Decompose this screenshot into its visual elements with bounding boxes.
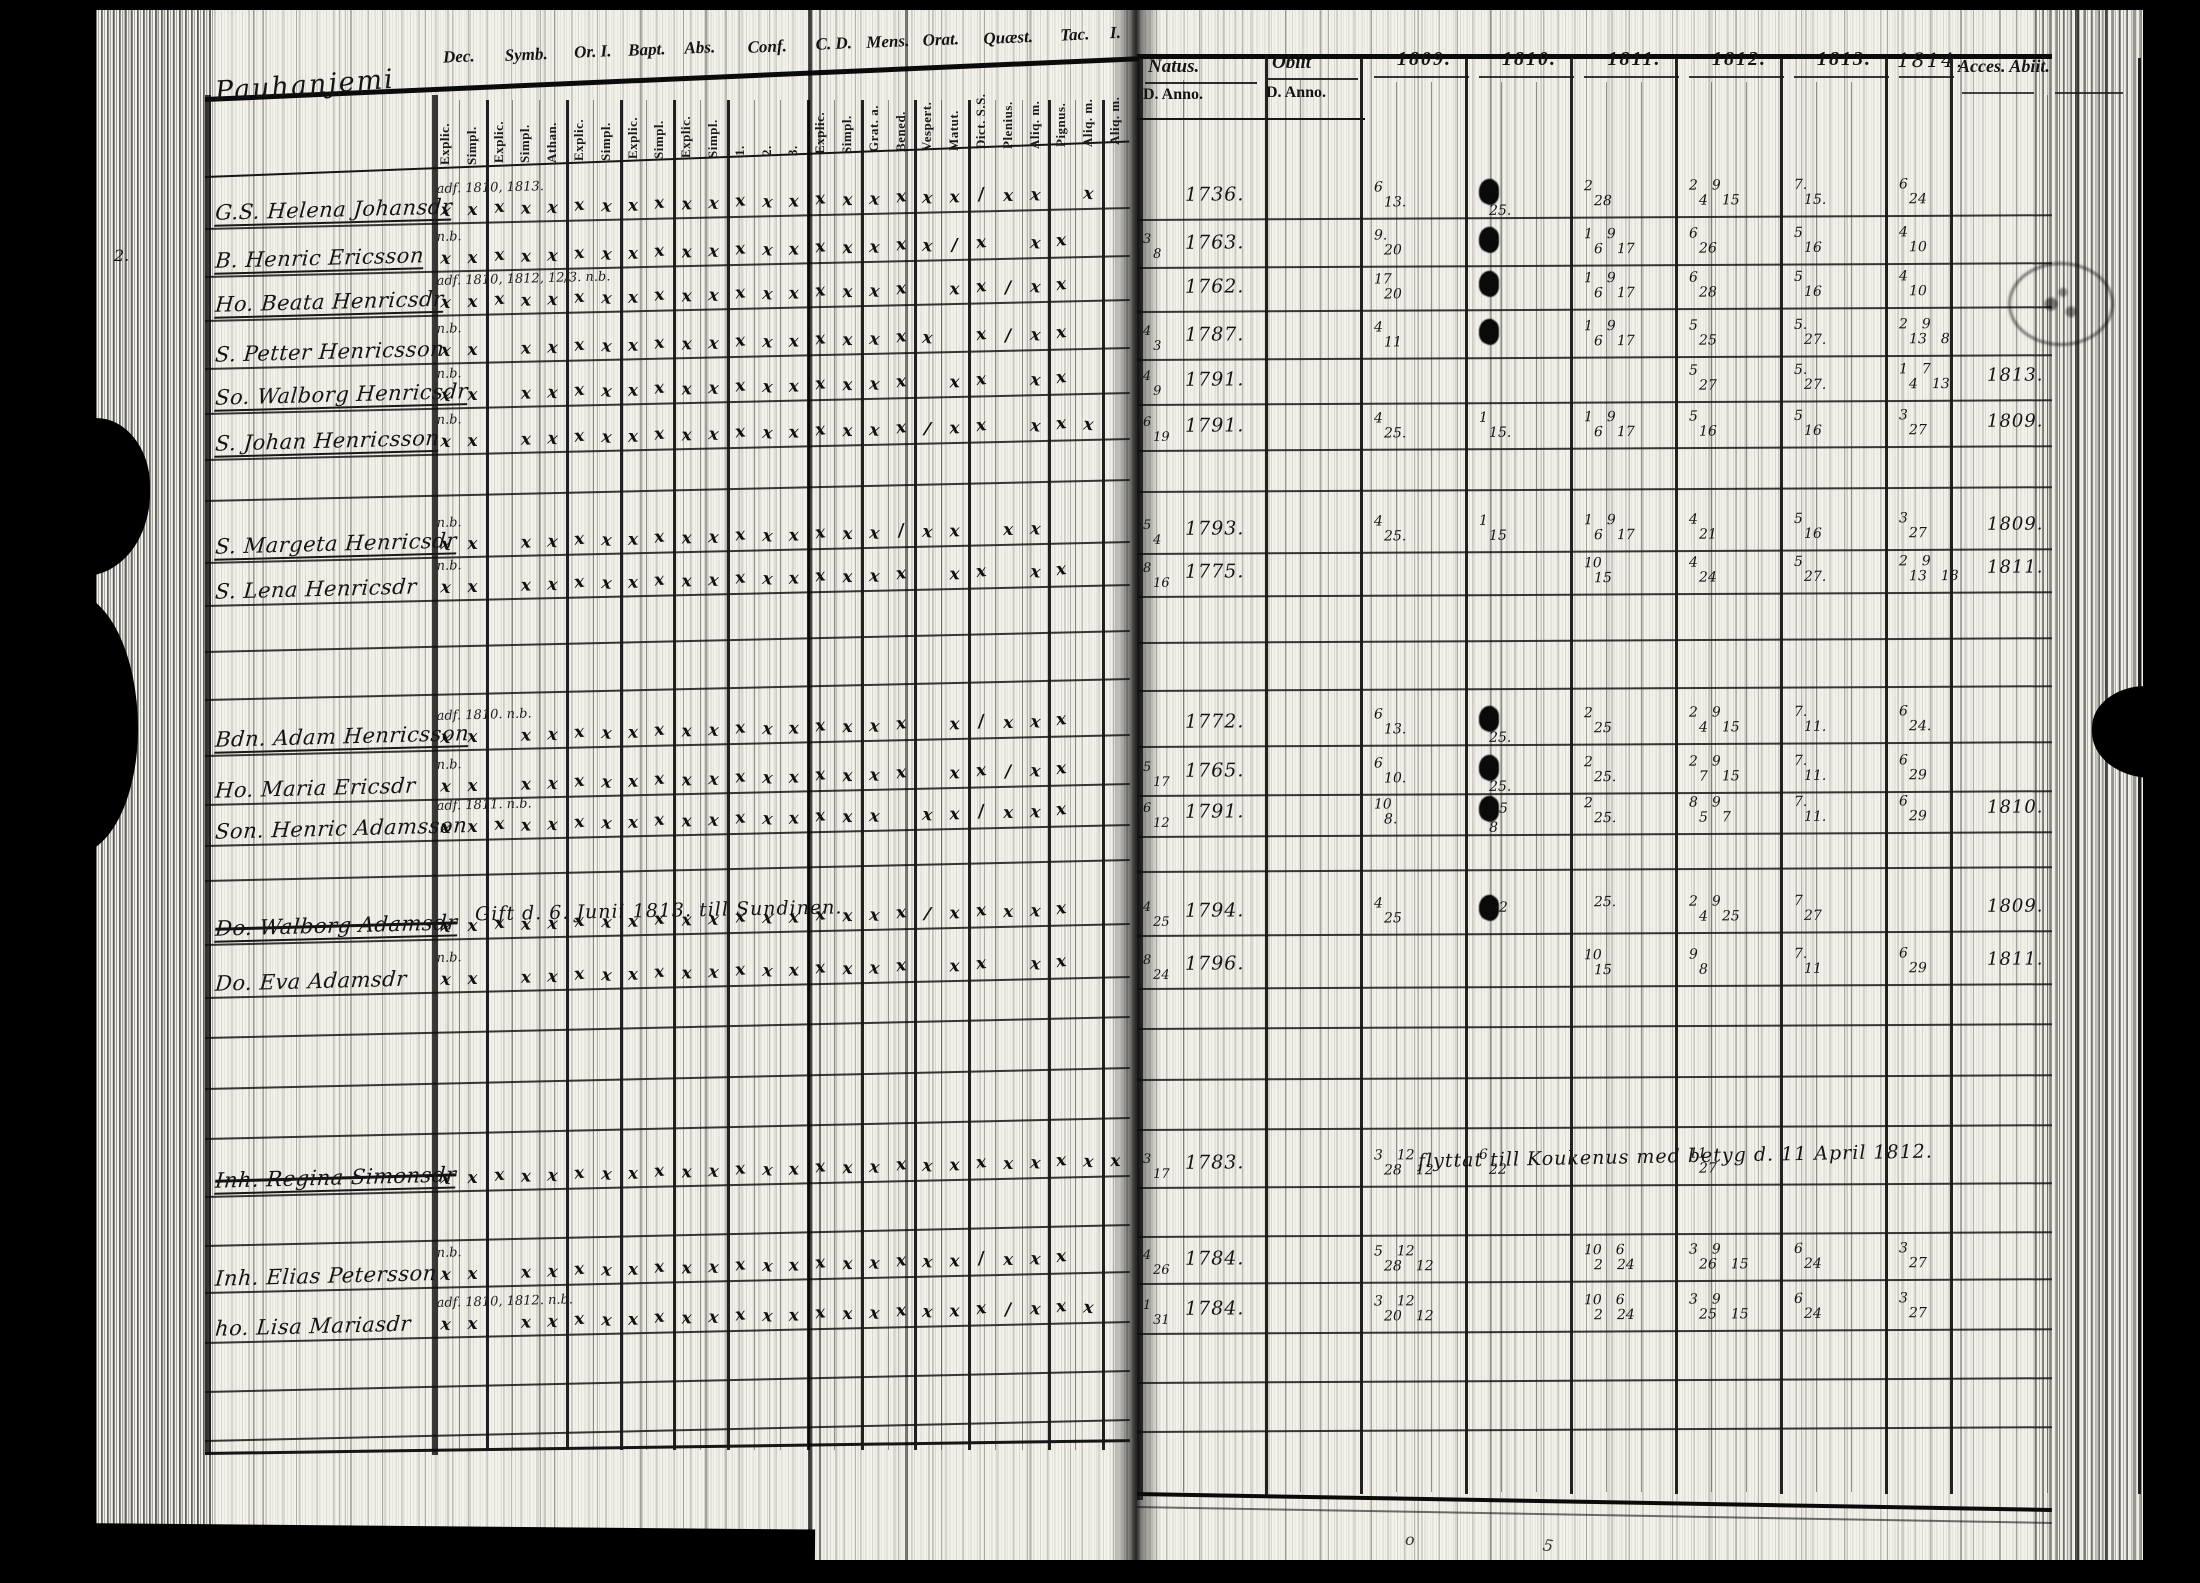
date-figures: 26 — [1143, 1263, 1170, 1278]
date-figures: 17 — [1374, 272, 1402, 287]
mark-x: x — [1047, 1149, 1076, 1172]
attendance-note: adf. 1810, 1812. n.b. — [436, 1292, 573, 1311]
mark-empty — [484, 573, 513, 596]
mark-x: x — [673, 1162, 700, 1183]
year-header: 1814. — [1897, 48, 1962, 72]
mark-x: x — [1047, 229, 1076, 252]
date-figures: 6 — [1374, 707, 1406, 722]
communion-dates-1811: 1015 — [1584, 948, 1612, 978]
abiit-year: 1809. — [1987, 413, 2044, 428]
person-name: G.S. Helena Johansdr — [214, 194, 453, 226]
column-sub-label: Aliq. m. — [1080, 55, 1096, 147]
mark-x: x — [806, 564, 835, 587]
year-grid-row: 8241796.1015987.116291811. — [1137, 939, 2147, 991]
date-figures: 5 — [1794, 226, 1822, 241]
communion-dates-1813: 516 — [1794, 512, 1822, 542]
person-name: Do. Eva Adamsdr — [214, 967, 407, 996]
date-figures: 5 — [1689, 409, 1717, 424]
mark-x: x — [806, 235, 835, 258]
mark-x: x — [860, 328, 889, 350]
year-header: 1811. — [1582, 48, 1687, 71]
natus-day: 824 — [1143, 953, 1170, 983]
date-figures: 27 — [1794, 909, 1822, 924]
natus-year: 1783. — [1185, 1155, 1244, 1170]
mark-x: x — [699, 284, 728, 306]
mark-x: x — [512, 338, 539, 359]
date-figures: 5 — [1794, 512, 1822, 527]
date-figures: 11. — [1794, 720, 1826, 735]
communion-dates-1814: 410 — [1899, 269, 1927, 299]
year-header: 1813. — [1792, 48, 1897, 71]
date-figures: 3 — [1143, 1152, 1170, 1167]
mark-x: x — [673, 1258, 700, 1279]
mark-x: x — [673, 1308, 700, 1329]
natus-day: 517 — [1143, 760, 1170, 790]
mark-x: x — [699, 569, 728, 591]
communion-dates-1814: 327 — [1899, 1291, 1927, 1321]
film-notch-right — [2092, 686, 2200, 778]
date-figures: 8 — [1689, 963, 1708, 978]
mark-x: x — [673, 194, 700, 215]
date-figures: 24. — [1899, 719, 1931, 734]
date-figures: 8 — [1143, 953, 1170, 968]
date-figures: 27 — [1689, 378, 1717, 393]
mark-x: x — [941, 418, 968, 439]
mark-x: x — [484, 813, 513, 836]
mark-x: x — [645, 1159, 674, 1182]
mark-x: x — [673, 721, 700, 742]
communion-dates-1812: 626 — [1689, 226, 1717, 256]
date-figures: 25. — [1479, 731, 1511, 746]
date-figures: 27 — [1899, 526, 1927, 541]
communion-dates-1814: 1 74 13 — [1899, 362, 1950, 392]
mark-x: x — [673, 286, 700, 307]
mark-x: x — [619, 380, 646, 401]
date-figures: 5. — [1794, 363, 1826, 378]
date-figures: 21 — [1689, 527, 1717, 542]
date-figures: 3 — [1143, 232, 1161, 247]
mark-x: x — [967, 275, 996, 298]
year-underline — [1794, 76, 1889, 78]
mark-x: x — [645, 1305, 674, 1328]
communion-dates-1812: 2 97 15 — [1689, 754, 1740, 784]
mark-x: x — [1047, 321, 1076, 344]
date-figures: 6 17 — [1584, 334, 1635, 349]
mark-x: x — [994, 1250, 1021, 1271]
mark-x: x — [834, 190, 861, 211]
natus-day: 612 — [1143, 801, 1170, 831]
mark-empty — [1102, 323, 1129, 344]
mark-x: x — [1074, 183, 1103, 205]
communion-dates-1811: 1 96 17 — [1584, 513, 1635, 543]
date-figures: 2 24 — [1584, 1308, 1635, 1323]
communion-dates-1809: 425. — [1374, 411, 1406, 441]
communion-dates-1809: 9.20 — [1374, 228, 1402, 258]
mark-x: x — [512, 383, 539, 404]
date-figures: 19 — [1143, 430, 1170, 445]
mark-empty — [1102, 231, 1129, 252]
mark-x: x — [725, 716, 754, 739]
natus-year: 1736. — [1185, 187, 1244, 202]
mark-x: x — [431, 816, 460, 838]
person-name: So. Walborg Henricsdr — [214, 379, 469, 412]
natus-year: 1763. — [1185, 235, 1244, 250]
acces-abiit-header: Acces. Abiit. — [1958, 56, 2138, 77]
mark-empty — [1102, 952, 1129, 973]
communion-dates-1814: 327 — [1899, 408, 1927, 438]
mark-x: x — [619, 287, 646, 308]
communion-dates-1814: 2 913 8 — [1899, 317, 1950, 347]
mark-empty — [994, 371, 1021, 392]
mark-x: x — [753, 718, 782, 740]
mark-x: x — [538, 724, 567, 746]
date-figures: 15 — [1479, 529, 1507, 544]
abiit-year: 1811. — [1987, 559, 2044, 574]
mark-x: x — [699, 961, 728, 983]
mark-x: x — [699, 809, 728, 831]
mark-x: x — [459, 1314, 486, 1335]
column-group-label: I. — [1092, 22, 1140, 44]
mark-x: x — [1021, 561, 1050, 583]
abiit-year: 1810. — [1987, 799, 2044, 814]
obiit-underline — [1268, 78, 1358, 80]
attendance-note: n.b. — [436, 412, 461, 428]
person-name: Inh. Regina Simonsdr — [214, 1162, 457, 1194]
communion-dates-1812: 3 926 15 — [1689, 1242, 1749, 1272]
communion-dates-1812: 421 — [1689, 512, 1717, 542]
mark-x: x — [645, 422, 674, 445]
mark-x: x — [886, 1249, 915, 1272]
date-figures: 24 — [1794, 1307, 1822, 1322]
date-figures: 4 — [1689, 555, 1717, 570]
attendance-note: n.b. — [436, 229, 461, 245]
year-grid-row: 431787.4111 96 175255.27.2 913 8 — [1137, 310, 2147, 362]
mark-x: x — [780, 1305, 807, 1326]
mark-x: x — [1021, 369, 1050, 391]
date-figures: 5 — [1143, 760, 1170, 775]
communion-dates-1811: 1 96 17 — [1584, 227, 1635, 257]
mark-x: x — [699, 719, 728, 741]
communion-dates-1811: 225. — [1584, 755, 1616, 785]
date-figures: 8. — [1374, 812, 1397, 827]
column-sub-label: Plenius. — [1000, 57, 1016, 149]
year-grid-row: 8161775.1015424527.2 913 181811. — [1137, 547, 2147, 599]
date-figures: 4 — [1143, 533, 1161, 548]
date-figures: 16 — [1143, 576, 1170, 591]
date-figures: 2 — [1584, 796, 1616, 811]
mark-x: x — [484, 196, 513, 219]
year-underline — [1479, 76, 1574, 78]
column-sub-label: Vespert. — [919, 59, 935, 151]
date-figures: 10 — [1899, 240, 1927, 255]
natus-day: 426 — [1143, 1248, 1170, 1278]
date-figures: 25. — [1584, 811, 1616, 826]
date-figures: 27 — [1899, 423, 1927, 438]
mark-x: x — [699, 377, 728, 399]
mark-x: x — [431, 199, 460, 221]
date-figures: 3 — [1899, 408, 1927, 423]
mark-x: x — [1047, 950, 1076, 973]
communion-dates-1809: 425 — [1374, 896, 1402, 926]
mark-x: ∕ — [994, 326, 1021, 347]
communion-dates-1813: 624 — [1794, 1242, 1822, 1272]
date-figures: 29 — [1899, 768, 1927, 783]
mark-x: x — [619, 1259, 646, 1280]
mark-x: x — [1021, 953, 1050, 975]
mark-x: x — [780, 331, 807, 352]
year-header: 1810. — [1477, 48, 1582, 71]
date-figures: 12 — [1143, 816, 1170, 831]
communion-dates-1814: 629 — [1899, 794, 1927, 824]
communion-dates-1813: 727 — [1794, 894, 1822, 924]
date-figures: 6 — [1899, 177, 1927, 192]
communion-dates-1809: 411 — [1374, 320, 1402, 350]
mark-x: x — [512, 1166, 539, 1187]
mark-x: x — [1047, 366, 1076, 389]
mark-x: x — [860, 1302, 889, 1324]
date-figures: 1 9 — [1584, 271, 1635, 286]
mark-x: x — [699, 332, 728, 354]
natus-year: 1787. — [1185, 327, 1244, 342]
date-figures: 4 15 — [1689, 720, 1740, 735]
mark-x: x — [565, 334, 594, 357]
mark-empty — [1074, 560, 1103, 582]
mark-x: x — [459, 817, 486, 838]
mark-x: x — [1047, 708, 1076, 731]
communion-dates-1811: 225. — [1584, 796, 1616, 826]
mark-x: x — [1047, 558, 1076, 581]
date-figures: 4 — [1899, 269, 1927, 284]
mark-x: x — [645, 808, 674, 831]
mark-x: x — [538, 289, 567, 311]
mark-x: x — [459, 248, 486, 269]
communion-dates-1809: 613. — [1374, 180, 1406, 210]
mark-x: x — [484, 288, 513, 311]
date-figures: 2 — [1584, 755, 1616, 770]
date-figures: 16 — [1794, 527, 1822, 542]
natus-year: 1784. — [1185, 1301, 1244, 1316]
mark-x: x — [1021, 415, 1050, 437]
mark-x: x — [725, 958, 754, 981]
mark-x: x — [592, 287, 621, 309]
natus-year: 1784. — [1185, 1251, 1244, 1266]
person-name: Son. Henric Adamsson — [214, 813, 468, 844]
mark-x: x — [592, 1163, 621, 1185]
mark-x: x — [592, 380, 621, 402]
mark-x: x — [860, 280, 889, 302]
mark-x: x — [619, 195, 646, 216]
mark-x: x — [780, 283, 807, 304]
attendance-note: n.b. — [436, 366, 461, 382]
communion-dates-1811: 10 62 24 — [1584, 1293, 1635, 1323]
column-sub-label: Matut. — [946, 59, 962, 151]
mark-x: x — [699, 1256, 728, 1278]
communion-dates-1813: 516 — [1794, 270, 1822, 300]
date-figures: 17 — [1143, 1167, 1170, 1182]
date-figures: 5 — [1794, 409, 1822, 424]
mark-x: x — [753, 422, 782, 444]
ink-blot — [1479, 896, 1499, 920]
mark-x: x — [673, 963, 700, 984]
mark-x: x — [645, 239, 674, 262]
mark-empty — [484, 723, 513, 746]
ink-blot — [1479, 320, 1499, 344]
communion-dates-1811: 225 — [1584, 706, 1612, 736]
mark-x: x — [699, 1160, 728, 1182]
mark-x: x — [1074, 414, 1103, 436]
date-figures: 13. — [1374, 722, 1406, 737]
mark-x: x — [725, 1157, 754, 1180]
mark-x: x — [886, 954, 915, 977]
mark-x: x — [886, 416, 915, 439]
date-figures: 6 — [1143, 801, 1170, 816]
mark-x: x — [780, 525, 807, 546]
abiit-underline — [2055, 92, 2123, 94]
mark-x: x — [806, 714, 835, 737]
communion-dates-1810: 115. — [1479, 411, 1511, 441]
mark-x: x — [753, 1255, 782, 1277]
date-figures: 24 — [1899, 192, 1927, 207]
mark-empty — [941, 327, 968, 348]
mark-x: x — [1021, 1298, 1050, 1320]
date-figures: 4 — [1374, 411, 1406, 426]
mark-x: x — [725, 523, 754, 546]
date-figures: 4 — [1143, 369, 1161, 384]
mark-x: x — [431, 576, 460, 598]
ink-blot — [1479, 797, 1499, 821]
mark-x: x — [459, 385, 486, 406]
date-figures: 2 9 — [1899, 317, 1950, 332]
date-figures: 29 — [1899, 809, 1927, 824]
mark-empty — [1074, 710, 1103, 732]
date-figures: 7. — [1794, 705, 1826, 720]
communion-dates-1814: 624 — [1899, 177, 1927, 207]
date-figures: 15 — [1584, 571, 1612, 586]
mark-x: x — [512, 198, 539, 219]
date-figures: 3 — [1899, 1241, 1927, 1256]
mark-x: x — [673, 334, 700, 355]
mark-x: x — [512, 429, 539, 450]
mark-x: x — [645, 1255, 674, 1278]
natus-header: Natus. — [1148, 56, 1199, 78]
column-sub-label: Simpl. — [517, 71, 533, 163]
column-sub-label: Explic. — [437, 73, 453, 165]
date-figures: 3 — [1143, 339, 1161, 354]
date-figures: 6 — [1794, 1242, 1822, 1257]
abiit-year: 1813. — [1987, 367, 2044, 382]
mark-x: x — [806, 187, 835, 210]
mark-x: x — [886, 1153, 915, 1176]
column-sub-label: Simpl. — [598, 69, 614, 161]
column-sub-label: Simpl. — [651, 67, 667, 159]
communion-dates-1814: 327 — [1899, 511, 1927, 541]
natus-day: 317 — [1143, 1152, 1170, 1182]
mark-x: x — [967, 1297, 996, 1320]
date-figures — [1479, 228, 1499, 252]
mark-x: x — [725, 237, 754, 260]
mark-x: x — [886, 370, 915, 393]
mark-x: x — [619, 1163, 646, 1184]
mark-x: x — [941, 1301, 968, 1322]
date-figures: 11 — [1794, 962, 1822, 977]
column-sub-label: Simpl. — [839, 62, 855, 154]
date-figures: 1 — [1143, 1298, 1170, 1313]
mark-x: x — [806, 1251, 835, 1274]
communion-dates-1810 — [1479, 320, 1499, 344]
communion-dates-1811: 1 96 17 — [1584, 410, 1635, 440]
mark-empty — [1102, 1297, 1129, 1318]
year-header: 1809. — [1372, 48, 1477, 71]
date-figures: 25. — [1584, 770, 1616, 785]
mark-x: x — [967, 231, 996, 254]
mark-x: x — [431, 726, 460, 748]
mark-x: x — [512, 725, 539, 746]
communion-dates-1811: 1015 — [1584, 556, 1612, 586]
mark-x: x — [886, 712, 915, 735]
date-figures: 6 — [1899, 704, 1931, 719]
mark-x: x — [431, 291, 460, 313]
mark-x: x — [459, 1168, 486, 1189]
mark-x: x — [967, 414, 996, 437]
date-figures: 25 15 — [1689, 1307, 1749, 1322]
date-figures: 2 9 — [1689, 705, 1740, 720]
communion-dates-1812: 2 94 15 — [1689, 705, 1740, 735]
mark-x: x — [725, 189, 754, 212]
mark-x: x — [725, 420, 754, 443]
mark-x: x — [834, 421, 861, 442]
date-figures: 25. — [1479, 204, 1511, 219]
date-figures — [1479, 180, 1511, 204]
date-figures: 4 — [1374, 320, 1402, 335]
mark-x: x — [994, 1154, 1021, 1175]
mark-x: ∕ — [913, 418, 942, 440]
date-figures: 4 — [1143, 1248, 1170, 1263]
year-underline — [1689, 76, 1784, 78]
mark-x: x — [967, 368, 996, 391]
person-name: Ho. Beata Henricsdr — [214, 287, 444, 319]
mark-x: x — [673, 528, 700, 549]
attendance-note: n.b. — [436, 950, 461, 966]
mark-x: x — [592, 243, 621, 265]
ink-blot — [1479, 756, 1499, 780]
communion-dates-1812: 516 — [1689, 409, 1717, 439]
mark-x: x — [753, 1305, 782, 1327]
mark-x: x — [512, 246, 539, 267]
communion-dates-1809: 5 1228 12 — [1374, 1244, 1434, 1274]
year-grid-row: 6191791.425.115.1 96 175165163271809. — [1137, 401, 2147, 453]
mark-x: ∕ — [994, 1300, 1021, 1321]
date-figures: 25. — [1374, 426, 1406, 441]
date-figures: 7. — [1794, 754, 1826, 769]
date-figures: 25 — [1143, 915, 1170, 930]
date-figures: 24 — [1689, 570, 1717, 585]
natus-year: 1796. — [1185, 956, 1244, 971]
communion-dates-1812: 98 — [1689, 948, 1708, 978]
communion-dates-1810: 2 — [1479, 896, 1508, 920]
mark-x: x — [860, 236, 889, 258]
mark-x: x — [1021, 711, 1050, 733]
mark-x: x — [834, 959, 861, 980]
mark-x: x — [753, 283, 782, 305]
communion-dates-1814: 410 — [1899, 225, 1927, 255]
obiit-d-anno-header: D. Anno. — [1266, 84, 1326, 102]
date-figures: 1 — [1479, 514, 1507, 529]
mark-empty — [994, 955, 1021, 976]
mark-x: x — [484, 1164, 513, 1187]
ink-blot — [1479, 707, 1499, 731]
natus-year: 1762. — [1185, 279, 1244, 294]
mark-x: x — [592, 1309, 621, 1331]
